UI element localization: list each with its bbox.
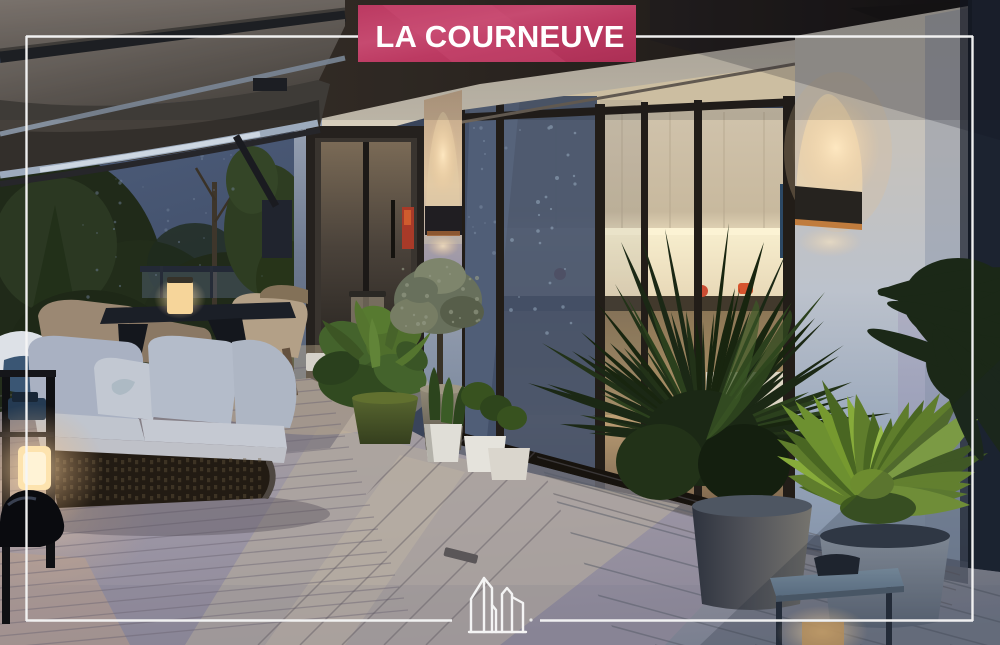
svg-text:LA COURNEUVE: LA COURNEUVE [375,19,624,54]
